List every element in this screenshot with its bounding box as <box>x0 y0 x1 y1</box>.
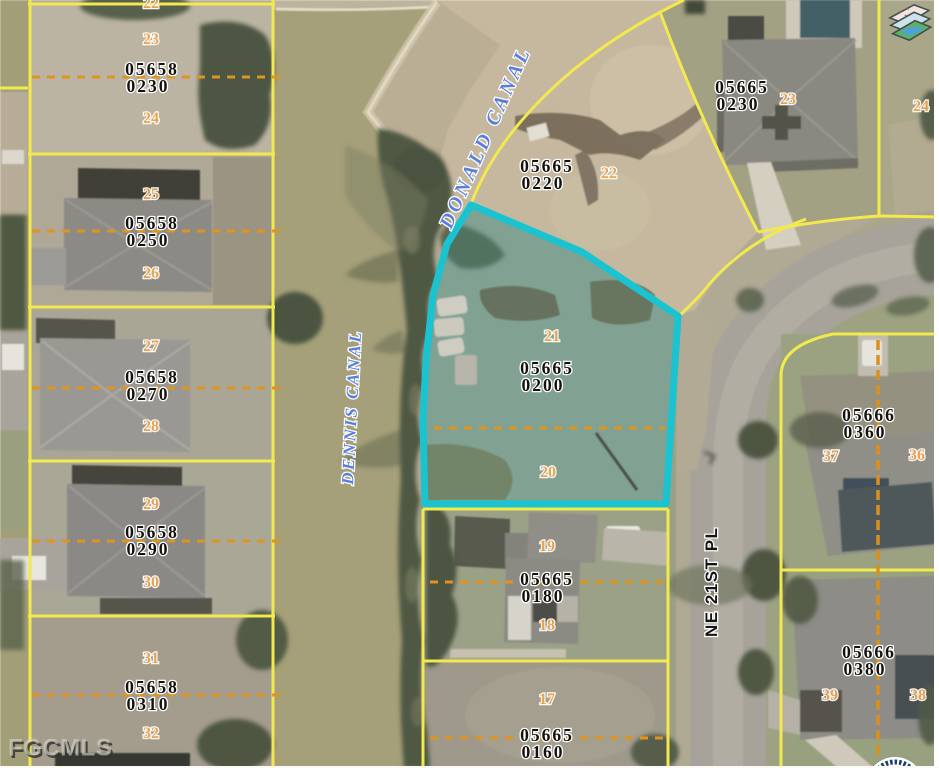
svg-text:22: 22 <box>601 165 617 182</box>
svg-text:0380: 0380 <box>844 659 887 679</box>
svg-text:22: 22 <box>143 0 159 12</box>
svg-text:23: 23 <box>143 31 159 48</box>
svg-text:36: 36 <box>909 447 925 464</box>
svg-text:18: 18 <box>539 617 555 634</box>
svg-text:0180: 0180 <box>522 586 565 606</box>
svg-text:0360: 0360 <box>844 422 887 442</box>
svg-text:FGCMLS: FGCMLS <box>8 735 112 762</box>
svg-text:0230: 0230 <box>717 94 760 114</box>
svg-text:19: 19 <box>539 538 555 555</box>
svg-text:26: 26 <box>143 265 159 282</box>
svg-text:0220: 0220 <box>522 173 565 193</box>
svg-text:0160: 0160 <box>522 742 565 762</box>
svg-text:39: 39 <box>822 687 838 704</box>
svg-text:31: 31 <box>143 650 159 667</box>
svg-text:38: 38 <box>910 687 926 704</box>
svg-text:20: 20 <box>540 464 556 481</box>
svg-text:0310: 0310 <box>127 694 170 714</box>
svg-text:17: 17 <box>539 691 555 708</box>
svg-text:0270: 0270 <box>127 384 170 404</box>
svg-text:32: 32 <box>143 725 159 742</box>
svg-text:0290: 0290 <box>127 539 170 559</box>
svg-text:0230: 0230 <box>127 76 170 96</box>
svg-text:25: 25 <box>143 186 159 203</box>
svg-text:24: 24 <box>913 98 929 115</box>
svg-text:NE 21ST PL: NE 21ST PL <box>702 527 721 637</box>
svg-text:28: 28 <box>143 418 159 435</box>
svg-text:0200: 0200 <box>522 375 565 395</box>
svg-text:29: 29 <box>143 496 159 513</box>
svg-text:23: 23 <box>780 91 796 108</box>
svg-text:27: 27 <box>143 338 159 355</box>
svg-text:30: 30 <box>143 574 159 591</box>
svg-text:24: 24 <box>143 110 159 127</box>
svg-text:37: 37 <box>823 448 839 465</box>
svg-text:21: 21 <box>544 328 560 345</box>
svg-text:0250: 0250 <box>127 230 170 250</box>
